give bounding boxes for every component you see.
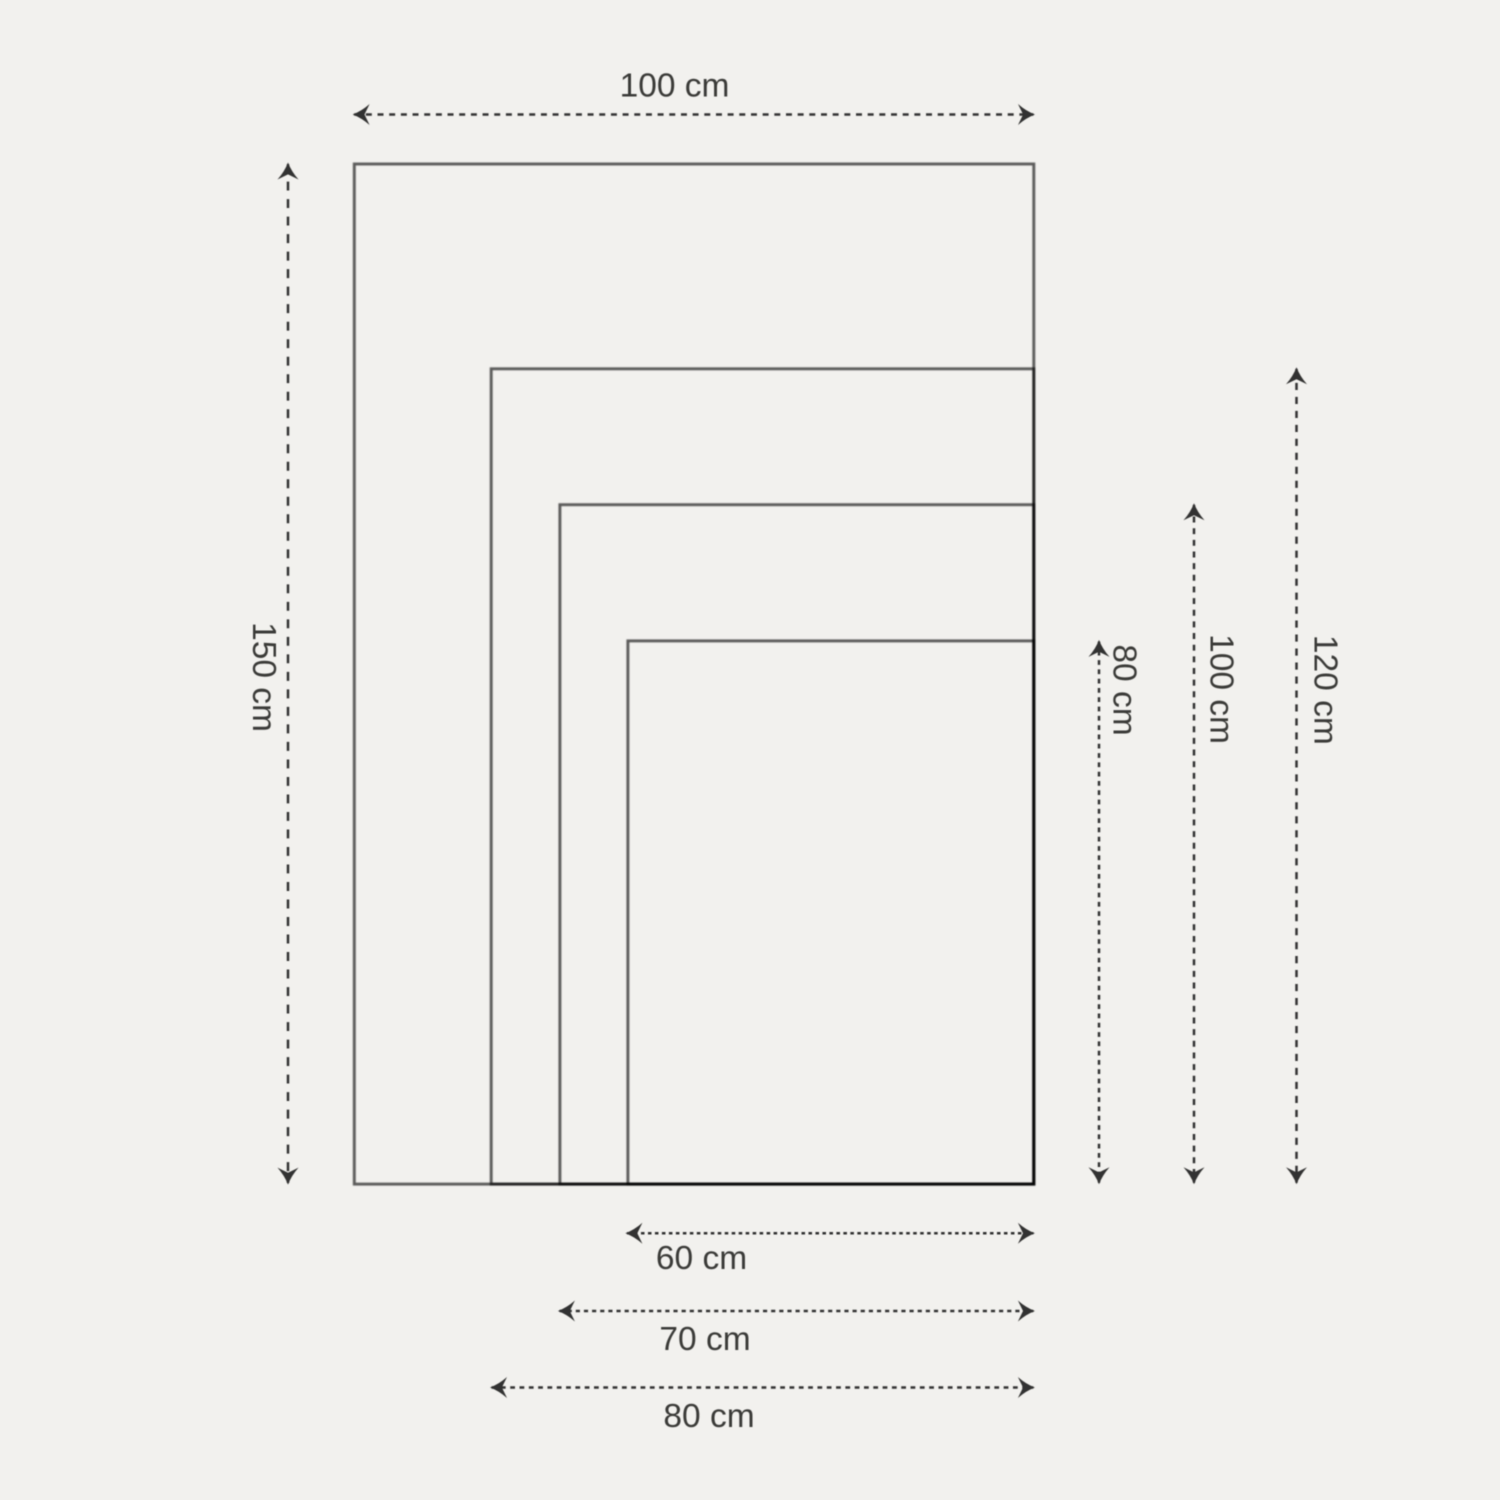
svg-text:100 cm: 100 cm [1203, 634, 1240, 744]
svg-text:150 cm: 150 cm [245, 622, 282, 732]
svg-text:60 cm: 60 cm [656, 1240, 747, 1277]
svg-text:120 cm: 120 cm [1307, 635, 1344, 745]
svg-text:100 cm: 100 cm [620, 68, 730, 105]
svg-text:80 cm: 80 cm [1106, 644, 1143, 735]
svg-text:70 cm: 70 cm [659, 1321, 750, 1358]
svg-text:80 cm: 80 cm [663, 1398, 754, 1435]
